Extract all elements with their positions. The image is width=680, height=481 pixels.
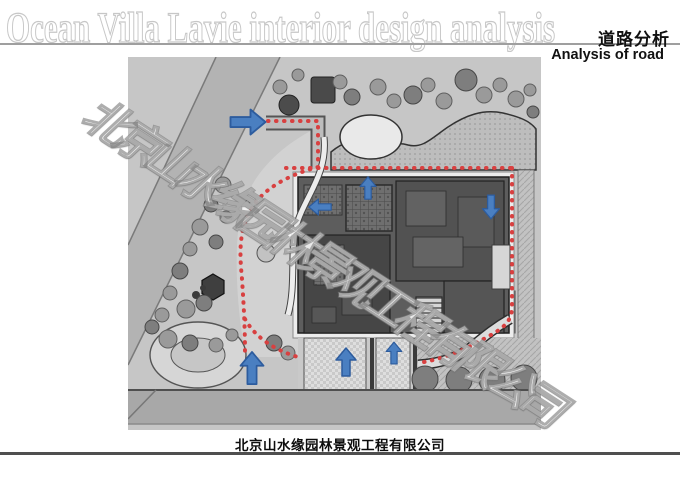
presentation-page: { "header": { "title": "Ocean Villa Lavi… [0, 0, 680, 481]
site-plan-image [128, 57, 541, 430]
analysis-title-english: Analysis of road [551, 47, 664, 63]
south-street [128, 390, 541, 424]
footer-divider-line [0, 452, 680, 455]
header-divider-line [0, 43, 680, 45]
main-building [293, 172, 514, 338]
site-plan-svg [128, 57, 541, 430]
footer-company-name: 北京山水缘园林景观工程有限公司 [0, 434, 680, 454]
pond [340, 115, 402, 159]
page-title: Ocean Villa Lavie interior design analys… [6, 4, 555, 53]
